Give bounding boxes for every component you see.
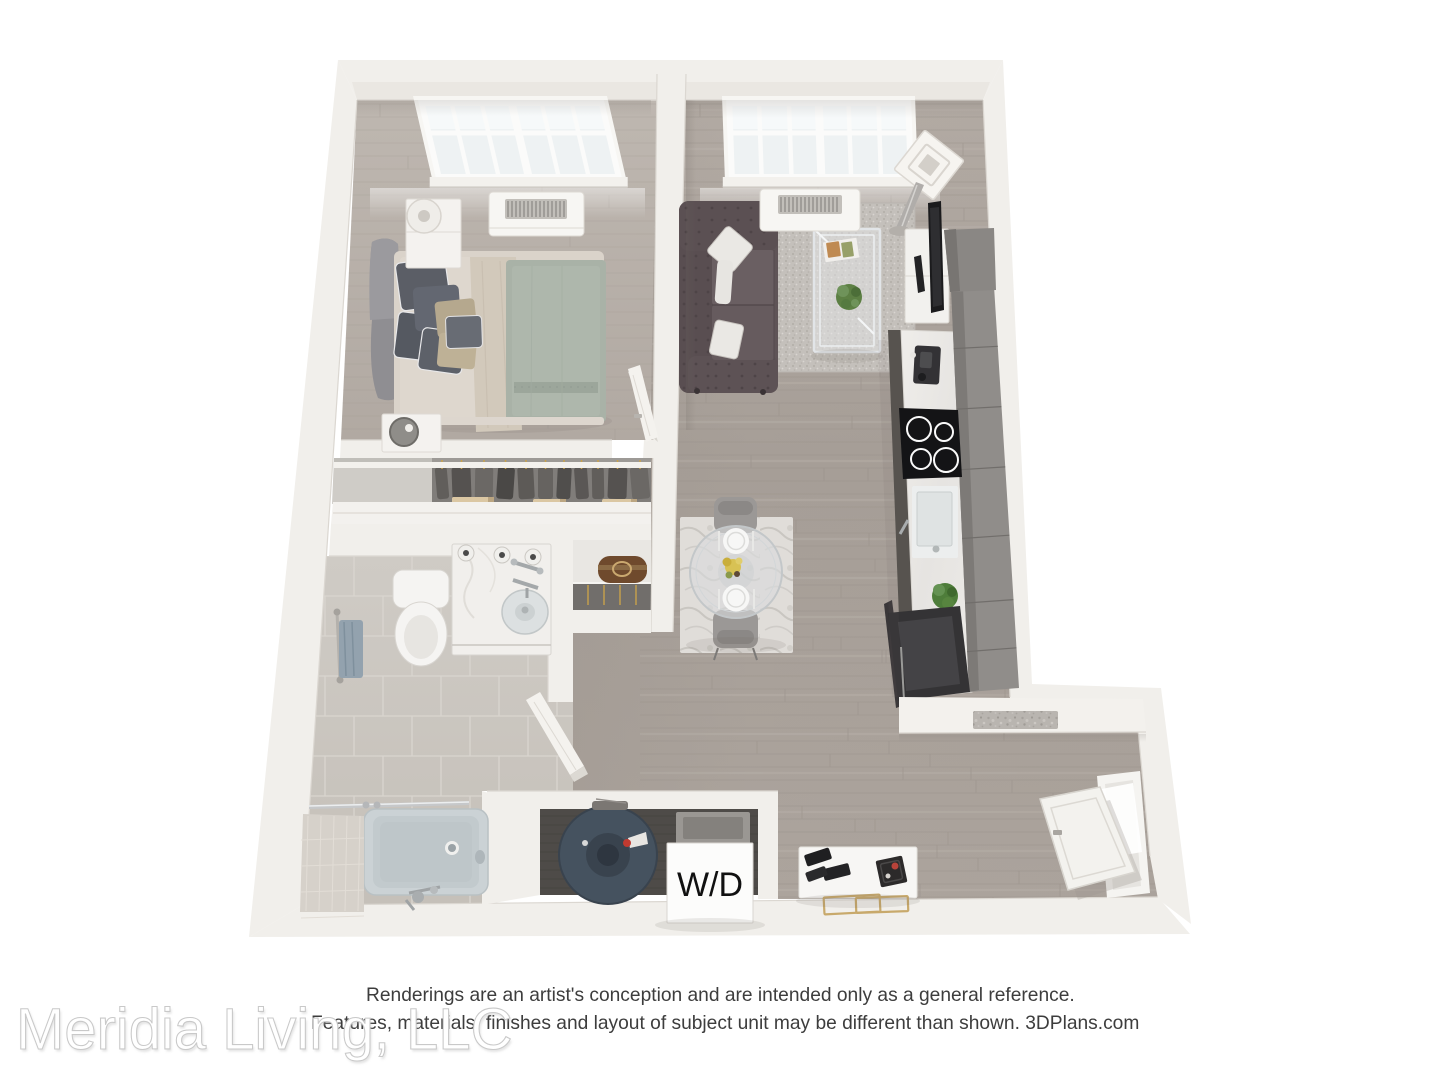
svg-text:W/D: W/D	[677, 866, 743, 904]
